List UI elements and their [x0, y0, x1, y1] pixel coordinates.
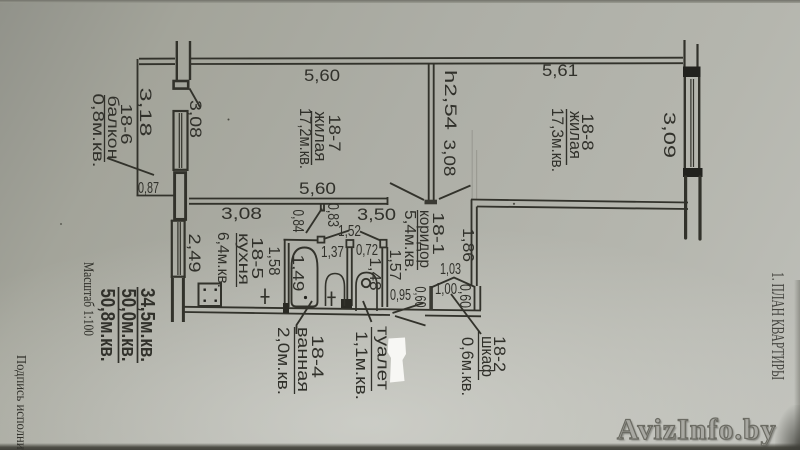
svg-text:5,60: 5,60 [299, 179, 336, 198]
svg-text:2,49: 2,49 [185, 234, 204, 273]
svg-text:Подпись исполнит: Подпись исполнит [13, 355, 28, 450]
svg-text:0,72: 0,72 [356, 242, 378, 259]
svg-text:жилая: жилая [566, 111, 585, 159]
svg-text:2,0м.кв.: 2,0м.кв. [274, 327, 292, 395]
svg-text:ванная: ванная [294, 327, 312, 392]
svg-text:кухня: кухня [235, 233, 252, 285]
svg-text:1,48: 1,48 [366, 258, 383, 291]
svg-text:1,49: 1,49 [289, 255, 306, 292]
svg-text:шкаф: шкаф [478, 336, 496, 377]
svg-text:3,08: 3,08 [221, 204, 262, 223]
svg-text:0,8м.кв.: 0,8м.кв. [89, 94, 106, 168]
svg-text:1,03: 1,03 [440, 261, 461, 278]
svg-text:0,87: 0,87 [138, 180, 159, 197]
svg-text:5,61: 5,61 [542, 61, 578, 80]
svg-text:3,08: 3,08 [440, 140, 459, 177]
svg-text:0,84: 0,84 [289, 210, 306, 233]
svg-text:1,58: 1,58 [265, 247, 282, 276]
svg-text:1,00: 1,00 [435, 281, 457, 298]
svg-text:0,83: 0,83 [324, 203, 341, 227]
svg-text:0,60: 0,60 [411, 287, 428, 308]
svg-text:50,0м.кв.: 50,0м.кв. [117, 289, 139, 362]
svg-text:Масштаб 1:100: Масштаб 1:100 [80, 262, 96, 336]
svg-text:3,09: 3,09 [660, 112, 679, 158]
svg-text:3,18: 3,18 [136, 88, 155, 137]
svg-text:1,1м.кв.: 1,1м.кв. [352, 331, 370, 400]
svg-text:1,86: 1,86 [459, 228, 476, 262]
svg-text:h2,54: h2,54 [441, 70, 460, 130]
svg-text:5,60: 5,60 [304, 66, 340, 85]
svg-text:3,08: 3,08 [186, 100, 205, 138]
svg-text:1. ПЛАН КВАРТИРЫ: 1. ПЛАН КВАРТИРЫ [768, 272, 788, 380]
svg-text:0,95: 0,95 [390, 287, 411, 304]
svg-text:50,8м.кв.: 50,8м.кв. [96, 289, 118, 362]
svg-text:0,60: 0,60 [456, 284, 473, 308]
svg-text:5,4м.кв.: 5,4м.кв. [401, 210, 418, 272]
svg-text:1,57: 1,57 [386, 250, 403, 281]
svg-text:1,37: 1,37 [321, 244, 344, 261]
svg-text:3,50: 3,50 [357, 205, 396, 224]
svg-text:0,6м.кв.: 0,6м.кв. [458, 337, 476, 396]
svg-text:туалет: туалет [374, 326, 392, 391]
svg-text:17,3м.кв.: 17,3м.кв. [548, 108, 567, 172]
svg-text:6,4м.кв.: 6,4м.кв. [214, 232, 231, 288]
